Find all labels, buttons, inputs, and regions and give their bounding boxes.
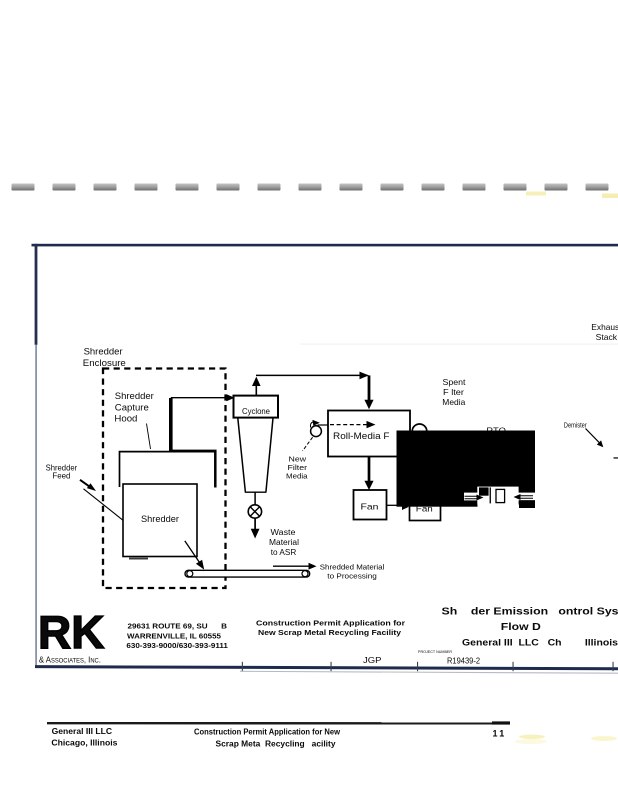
svg-text:Hood: Hood [114,413,137,423]
svg-text:RK: RK [38,606,104,658]
svg-text:Shredder: Shredder [141,514,179,524]
svg-text:Enclosure: Enclosure [83,358,126,368]
svg-text:WARRENVILLE, IL 60555: WARRENVILLE, IL 60555 [127,632,222,641]
svg-text:Demister: Demister [564,423,588,430]
svg-text:Material: Material [269,538,299,547]
svg-text:F lter: F lter [443,387,464,397]
svg-text:R19439-2: R19439-2 [447,656,481,665]
svg-text:Shredder: Shredder [115,391,154,401]
svg-text:Roll-Media F: Roll-Media F [333,431,390,442]
svg-text:Flow D: Flow D [501,621,541,633]
svg-text:29631 ROUTE 69, SU B: 29631 ROUTE 69, SU B [128,621,228,630]
svg-text:Sh der Emission ontrol Sy: Sh der Emission ontrol Sys [442,606,618,617]
svg-text:Exhaust: Exhaust [591,322,618,332]
svg-text:PROJECT NUMBER: PROJECT NUMBER [418,650,452,654]
svg-text:630-393-9000/630-393-9111: 630-393-9000/630-393-9111 [126,641,228,650]
svg-text:to ASR: to ASR [271,548,297,557]
svg-text:Fan: Fan [361,502,379,512]
svg-text:JGP: JGP [363,655,382,665]
svg-text:Shredder: Shredder [84,346,123,356]
svg-text:Media: Media [442,397,465,407]
svg-text:Construction Permit Applicatio: Construction Permit Application for New [194,728,341,737]
svg-text:Capture: Capture [115,403,149,413]
svg-text:Waste: Waste [271,528,297,537]
svg-text:Feed: Feed [52,471,70,480]
svg-text:Media: Media [286,471,308,480]
svg-text:11: 11 [493,728,507,738]
svg-text:General III LLC: General III LLC [52,727,113,736]
svg-text:Scrap Meta Recycling acilit: Scrap Meta Recycling acility [216,739,337,748]
svg-text:to Processing: to Processing [327,571,377,580]
svg-text:Spent: Spent [443,377,467,387]
svg-text:Chicago, Illinois: Chicago, Illinois [51,738,118,747]
svg-text:& Associates, Inc.: & Associates, Inc. [39,656,101,665]
svg-text:Stack: Stack [596,332,618,342]
svg-text:Shredded Material: Shredded Material [320,562,385,571]
svg-text:General III LLC Ch I: General III LLC Ch Illinois [462,638,618,648]
svg-text:Construction Permit Applicatio: Construction Permit Application for [256,618,405,627]
svg-text:Cyclone: Cyclone [242,406,270,416]
svg-text:New Scrap Metal Recycling Faci: New Scrap Metal Recycling Facility [258,628,402,637]
